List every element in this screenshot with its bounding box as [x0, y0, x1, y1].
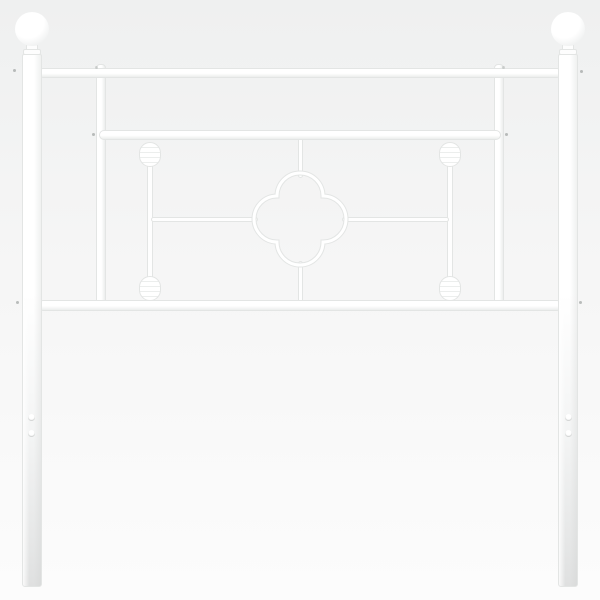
joint-dot: [92, 133, 95, 136]
right-finial-ball: [551, 12, 585, 46]
top-rail: [38, 68, 562, 78]
middle-rail: [99, 130, 501, 140]
joint-dot: [16, 301, 19, 304]
left-spindle-bottom-knob: [139, 276, 161, 301]
left-finial-ball: [15, 12, 49, 46]
bottom-rail: [38, 300, 562, 311]
joint-dot: [502, 66, 505, 69]
quatrefoil-ornament: [248, 167, 352, 271]
right-connecting-rod: [342, 217, 449, 222]
right-spindle-bottom-knob: [439, 276, 461, 301]
joint-dot: [13, 69, 16, 72]
right-finial-collar: [559, 49, 577, 55]
mounting-hole: [28, 414, 35, 421]
left-finial-collar: [23, 49, 41, 55]
headboard-product-photo: [0, 0, 600, 600]
joint-dot: [580, 70, 583, 73]
left-connecting-rod: [151, 217, 258, 222]
joint-dot: [579, 301, 582, 304]
left-post: [22, 54, 42, 587]
joint-dot: [95, 66, 98, 69]
right-post: [558, 54, 578, 587]
mounting-hole: [565, 414, 572, 421]
inner-left-upright: [96, 64, 106, 304]
left-spindle-top-knob: [139, 142, 161, 167]
right-spindle-top-knob: [439, 142, 461, 167]
joint-dot: [505, 133, 508, 136]
mounting-hole: [28, 430, 35, 437]
mounting-hole: [565, 430, 572, 437]
inner-right-upright: [494, 64, 504, 304]
